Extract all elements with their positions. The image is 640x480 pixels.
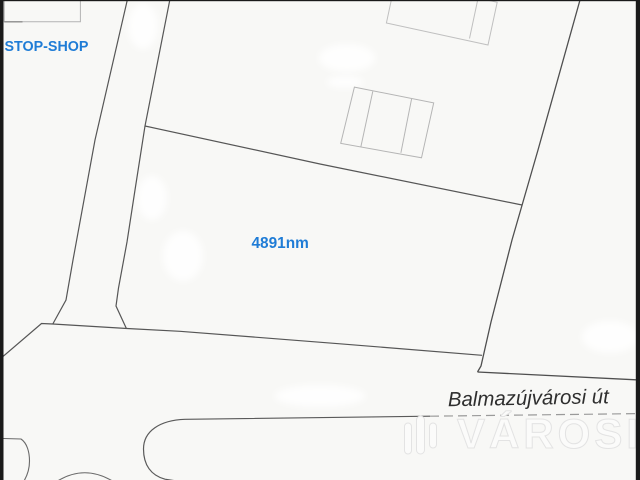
- svg-text:Balmazújvárosi út: Balmazújvárosi út: [448, 386, 611, 411]
- svg-text:STOP-SHOP: STOP-SHOP: [5, 39, 89, 55]
- svg-text:VÁROSI: VÁROSI: [457, 410, 640, 457]
- svg-text:4891nm: 4891nm: [252, 235, 309, 252]
